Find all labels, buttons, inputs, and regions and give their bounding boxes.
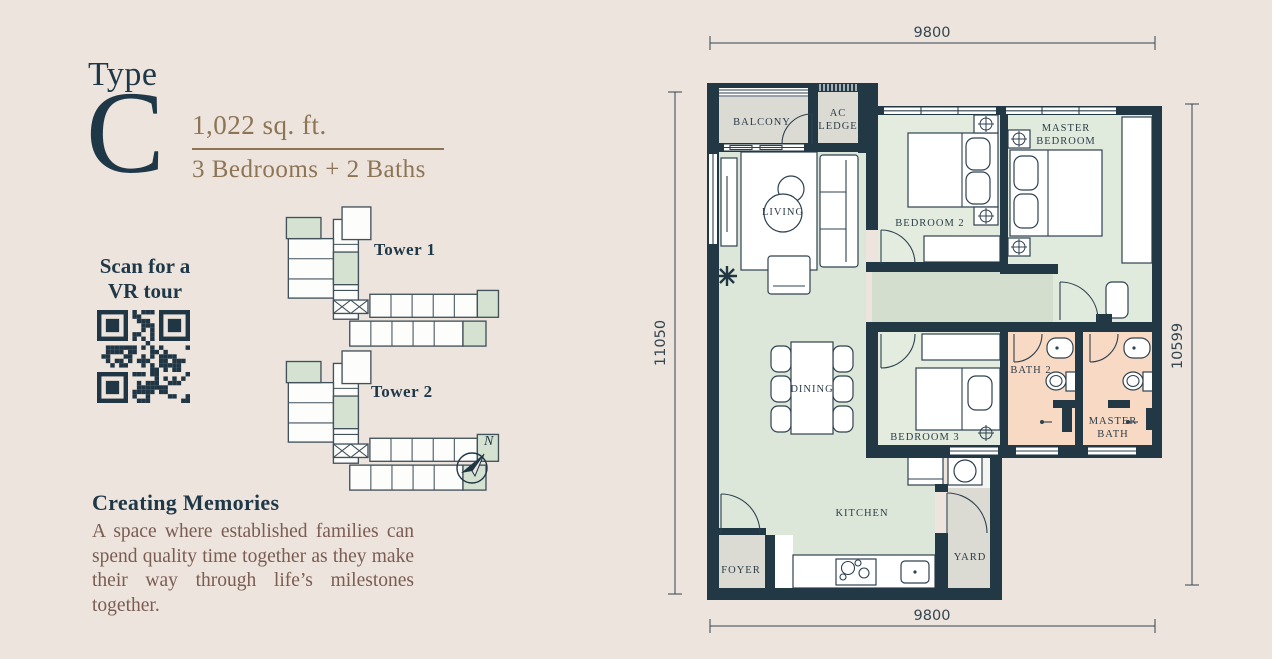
description-heading: Creating Memories: [92, 490, 414, 516]
unit-area: 1,022 sq. ft.: [192, 110, 452, 141]
tower1-keyplan: [277, 206, 505, 348]
dim-left-label: 11050: [653, 320, 669, 366]
room-label-ac-ledge-1: AC: [830, 108, 847, 119]
room-label-master-bath-1: MASTER: [1089, 416, 1138, 427]
room-label-kitchen: KITCHEN: [835, 508, 888, 519]
room-label-dining: DINING: [790, 384, 833, 395]
tower1-label: Tower 1: [374, 240, 436, 260]
plant-icon: [717, 266, 737, 286]
compass-north-label: N: [483, 434, 494, 449]
room-label-foyer: FOYER: [721, 565, 760, 576]
description-block: Creating Memories A space where establis…: [92, 490, 414, 618]
bedroom3-furniture: [916, 334, 1000, 430]
room-label-ac-ledge-2: LEDGE: [818, 121, 857, 132]
room-label-balcony: BALCONY: [733, 117, 791, 128]
room-label-master-bedroom-1: MASTER: [1042, 123, 1091, 134]
dim-top-label: 9800: [914, 25, 951, 41]
vr-scan-label: Scan for a VR tour: [84, 254, 206, 304]
room-label-bedroom3: BEDROOM 3: [890, 432, 959, 443]
dim-bottom-label: 9800: [914, 608, 951, 624]
compass-icon: N: [451, 431, 501, 489]
qr-code-icon: [97, 310, 190, 403]
floor-plan: BALCONY AC LEDGE LIVING BEDROOM 2 MASTER…: [650, 15, 1250, 659]
unit-config: 3 Bedrooms + 2 Baths: [192, 156, 452, 184]
divider-line: [192, 148, 444, 150]
room-label-bath2: BATH 2: [1010, 365, 1051, 376]
room-label-bedroom2: BEDROOM 2: [895, 218, 964, 229]
description-body: A space where established families can s…: [92, 520, 414, 618]
room-label-living: LIVING: [762, 207, 804, 218]
brochure-page: Type C 1,022 sq. ft. 3 Bedrooms + 2 Bath…: [0, 0, 1272, 659]
dim-right-label: 10599: [1170, 323, 1186, 369]
unit-summary: 1,022 sq. ft. 3 Bedrooms + 2 Baths: [192, 110, 452, 184]
room-label-yard: YARD: [954, 552, 987, 563]
unit-type-letter: C: [86, 74, 165, 192]
tower2-label: Tower 2: [371, 382, 433, 402]
room-label-master-bedroom-2: BEDROOM: [1036, 136, 1096, 147]
room-label-master-bath-2: BATH: [1097, 429, 1128, 440]
